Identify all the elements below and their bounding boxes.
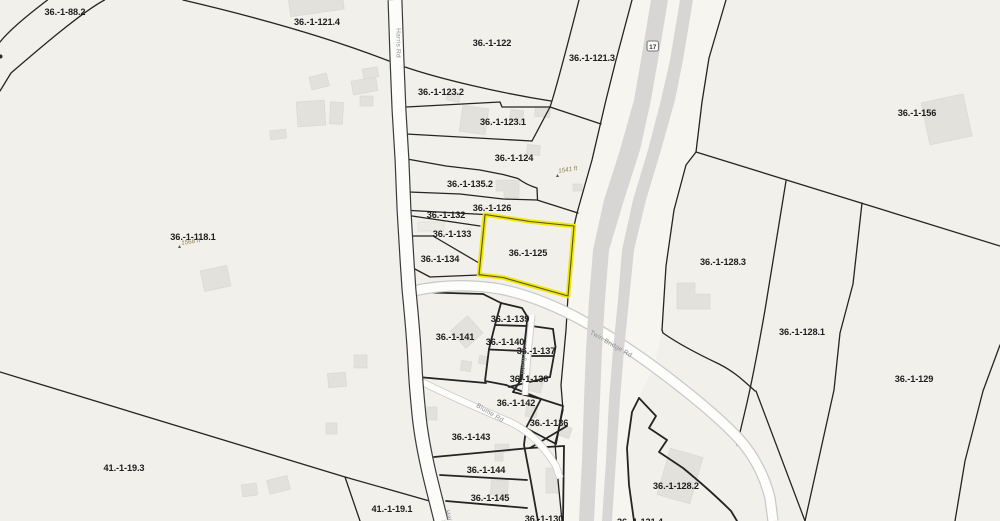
svg-text:36.-1-134: 36.-1-134 [421,254,460,264]
svg-text:36.-1-128.1: 36.-1-128.1 [779,327,825,337]
svg-text:Irving Ln: Irving Ln [520,347,527,374]
svg-text:36.-1-123.1: 36.-1-123.1 [480,117,526,127]
svg-text:36.-1-131.4: 36.-1-131.4 [617,517,664,521]
svg-text:36.-1-128.3: 36.-1-128.3 [700,257,746,267]
svg-text:36.-1-130: 36.-1-130 [525,514,563,521]
svg-text:36.-1-133: 36.-1-133 [433,229,471,239]
svg-text:41.-1-19.3: 41.-1-19.3 [104,463,145,473]
svg-text:36.-1-124: 36.-1-124 [495,153,534,163]
svg-text:36.-1-136: 36.-1-136 [530,418,568,428]
svg-text:36.-1-123.2: 36.-1-123.2 [418,87,464,97]
svg-text:17: 17 [649,44,657,51]
svg-text:36.-1-88.2: 36.-1-88.2 [45,7,86,17]
svg-text:36.-1-121.3: 36.-1-121.3 [569,53,615,63]
svg-text:36.-1-132: 36.-1-132 [427,210,465,220]
svg-text:41.-1-19.1: 41.-1-19.1 [372,504,413,514]
svg-text:36.-1-142: 36.-1-142 [497,398,535,408]
svg-text:36.-1-138: 36.-1-138 [510,374,548,384]
svg-text:36.-1-143: 36.-1-143 [452,432,490,442]
svg-text:36.-1-145: 36.-1-145 [471,493,509,503]
svg-text:36.-1-156: 36.-1-156 [898,108,936,118]
svg-text:36.-1-128.2: 36.-1-128.2 [653,481,699,491]
svg-text:Harris Rd: Harris Rd [395,28,402,58]
svg-text:36.-1-121.4: 36.-1-121.4 [294,17,341,27]
svg-text:36.-1-122: 36.-1-122 [473,38,511,48]
svg-text:36.-1-144: 36.-1-144 [467,465,506,475]
svg-text:36.-1-135.2: 36.-1-135.2 [447,179,493,189]
svg-text:36.-1-141: 36.-1-141 [436,332,474,342]
svg-text:36.-1-139: 36.-1-139 [491,314,529,324]
svg-text:36.-1-129: 36.-1-129 [895,374,933,384]
svg-text:36.-1-126: 36.-1-126 [473,203,511,213]
svg-text:36.-1-125: 36.-1-125 [509,248,547,258]
